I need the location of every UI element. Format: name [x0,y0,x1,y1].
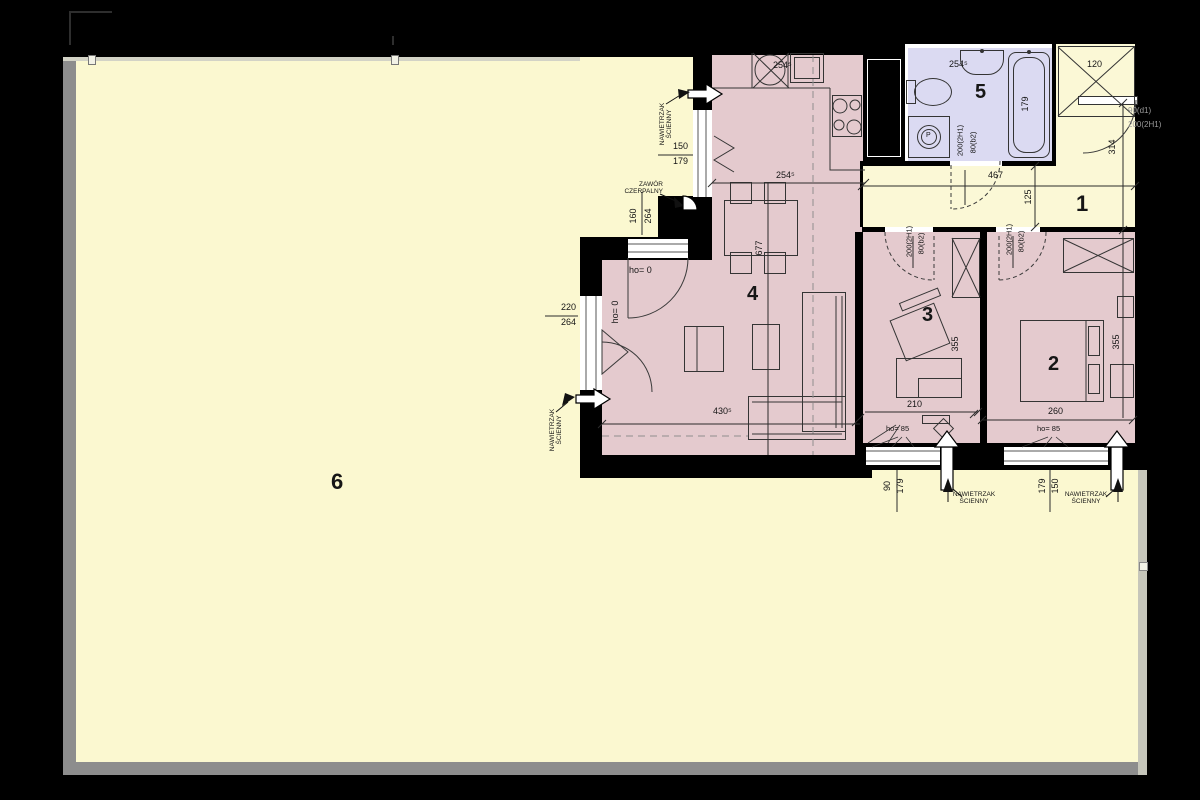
dining-table-icon [724,200,798,256]
balustrade-bottom [63,762,1147,775]
wall-bath-top [905,30,1140,44]
washer-drum-inner [921,129,937,145]
tub-tap [1027,50,1031,54]
floor-plan: 1 2 3 4 5 6 254⁵ 254⁵ 254⁵ 467 120 430⁵ … [0,0,1200,800]
pillow-icon [1088,326,1100,356]
sofa-chaise-icon [748,396,846,440]
wall-hall-kitchen [860,161,863,227]
bath-door-opening [950,161,1002,166]
balustrade-post [1139,562,1148,571]
chair-icon [730,182,752,204]
wardrobe-icon [952,238,980,298]
wall-kitchen-top [693,30,905,55]
toilet-tank [906,80,916,104]
desk-inner [918,378,962,398]
hallway-room-1 [862,166,1135,227]
chair-icon [730,252,752,274]
chair-icon [764,252,786,274]
coffee-table-icon [752,324,780,370]
stove-icon [832,95,862,137]
wall-room2-room3 [980,232,987,443]
sink-tap [980,49,984,53]
kitchen-window-opening [693,110,712,197]
living-window-opening [580,296,602,390]
pillow-icon [1088,364,1100,394]
armchair-icon [684,326,724,372]
nightstand-icon [1117,296,1134,318]
room2-door-opening [996,227,1040,232]
balcony-door-opening [628,239,688,258]
chair-icon [764,182,786,204]
window-a-opening [866,447,940,465]
terrace-below-building [580,470,1147,775]
balustrade-post [88,55,96,65]
balustrade-top [63,57,580,61]
balustrade-left [63,57,76,775]
wardrobe-icon [1058,46,1135,117]
nightstand-icon [1110,364,1134,398]
wall-living-room3 [855,232,863,455]
wall-hall-shaft [862,161,905,166]
terrace-room-6 [63,57,580,775]
bathtub-inner [1013,57,1045,153]
toilet-icon [914,78,952,106]
balustrade-post [391,55,399,65]
room3-door-opening [885,227,933,232]
window-b-opening [1004,447,1108,465]
wall-corner-column [658,196,712,240]
bathroom-sink-icon [960,50,1004,75]
wall-bath-hall [1052,44,1056,166]
balustrade-right [1138,470,1147,775]
wall-living-bottom [580,455,872,478]
wardrobe-icon [1063,238,1134,273]
shaft-inner-line [867,59,901,157]
kitchen-appliance-inner [794,57,820,79]
corner-marks [70,12,393,45]
